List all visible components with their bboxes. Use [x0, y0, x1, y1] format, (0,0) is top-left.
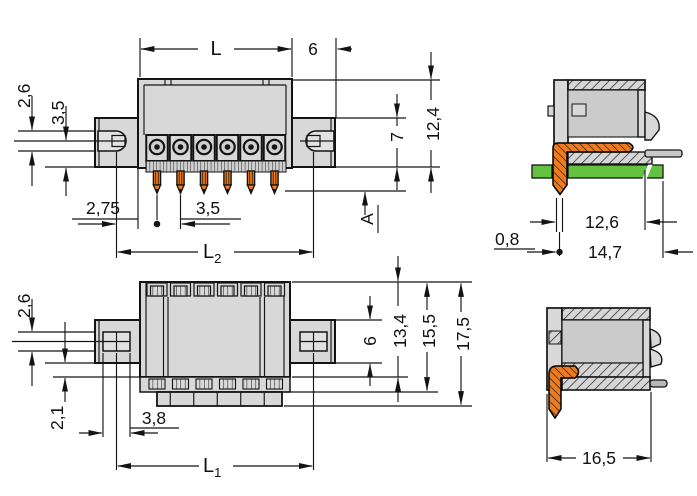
dim-6: 6: [308, 39, 318, 59]
pcb-left: [532, 165, 552, 178]
contact-blocks: [146, 135, 285, 161]
latch-hook-upper: [650, 329, 661, 348]
bent-solder-pin-orange-2: [549, 366, 579, 418]
dim-16-5: 16,5: [582, 448, 616, 468]
dim-2-75: 2,75: [86, 198, 120, 218]
side-view-bottom: [547, 308, 667, 418]
comb-strip: [146, 161, 286, 172]
dim-3-8: 3,8: [142, 408, 166, 428]
dim-L2: L2: [203, 241, 221, 266]
top-view: [95, 282, 335, 406]
mating-pin: [645, 150, 682, 157]
dim-15-5: 15,5: [419, 314, 439, 348]
housing-wall-bottom-hatched-2: [562, 377, 650, 390]
front-view: [14, 79, 335, 194]
latch-hook-lower: [650, 349, 662, 367]
solder-pins-front: [153, 171, 278, 194]
dim-0-8: 0,8: [495, 229, 519, 249]
dim-3-5-left: 3,5: [48, 101, 68, 125]
dim-7: 7: [387, 132, 407, 142]
latch-hook: [645, 112, 659, 140]
side-view-bottom-dimensions: 16,5: [547, 392, 651, 468]
dim-A: A: [357, 213, 377, 225]
dim-14-7: 14,7: [588, 242, 622, 262]
latch-pin-section: [549, 331, 561, 344]
dim-12-4: 12,4: [423, 107, 443, 141]
dim-L1: L1: [203, 455, 221, 480]
dim-12-6: 12,6: [585, 212, 619, 232]
housing-wall-bottom-hatched: [568, 152, 652, 164]
housing-cavity-2: [562, 320, 643, 363]
technical-drawing-connector: L 6 2,6 3,5 2,75 3,5 L2 7: [0, 0, 697, 496]
dim-6-top: 6: [360, 336, 380, 346]
dim-2-6-front: 2,6: [14, 84, 34, 108]
housing-wall-top-hatched-2: [562, 308, 650, 320]
mating-pin-2: [650, 380, 667, 387]
side-view-top: [532, 80, 682, 195]
dim-L: L: [210, 38, 221, 60]
drawing-canvas: L 6 2,6 3,5 2,75 3,5 L2 7: [0, 0, 697, 496]
dim-13-4: 13,4: [390, 314, 410, 348]
plug-tab: [157, 392, 282, 406]
side-view-top-dimensions: 0,8 12,6 14,7: [494, 170, 693, 262]
dim-2-1: 2,1: [47, 406, 67, 430]
housing-wall-top-hatched: [568, 80, 645, 90]
dim-3-5-pitch: 3,5: [196, 198, 220, 218]
dim-17-5: 17,5: [453, 317, 473, 351]
dim-2-6-top: 2,6: [14, 294, 34, 318]
